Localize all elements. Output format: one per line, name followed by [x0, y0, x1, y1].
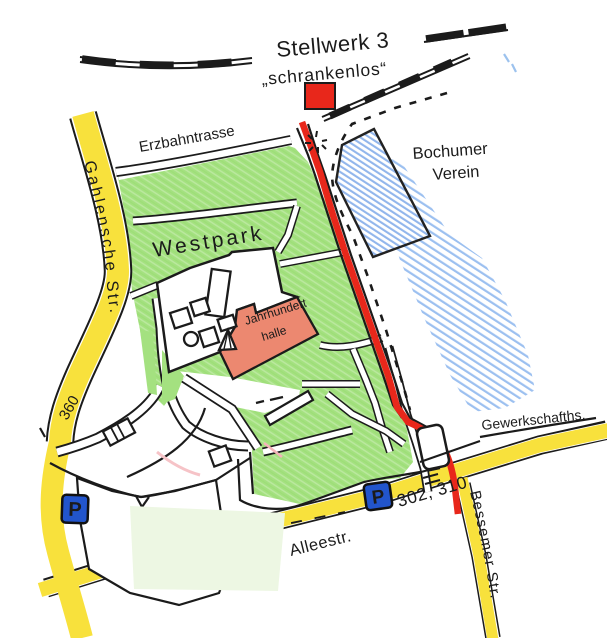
svg-text:P: P	[68, 499, 82, 521]
svg-text:Verein: Verein	[432, 163, 480, 184]
